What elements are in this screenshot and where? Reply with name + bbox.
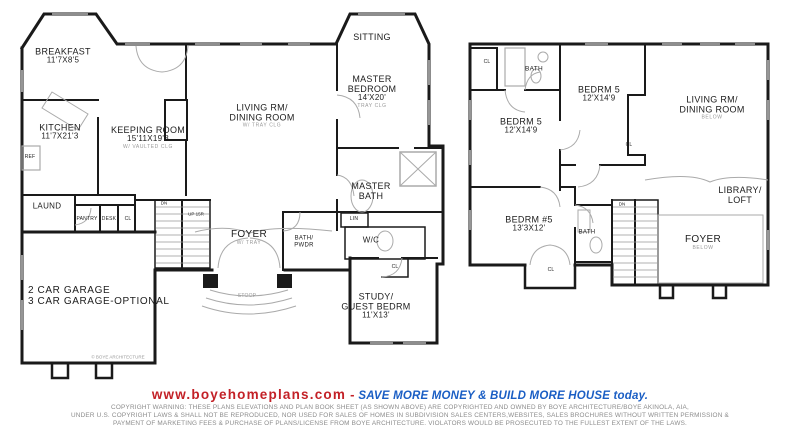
label-stairs-up: UP 15R [188,211,204,216]
room-name: BATH/ [294,235,314,242]
room-label-sitting: SITTING [353,32,391,42]
room-dims: 13'3X12' [505,225,552,234]
label-closet-hall: CL [125,217,132,223]
room-name: BATH [579,230,596,236]
copyright-line-1: COPYRIGHT WARNING: THESE PLANS ELEVATION… [0,404,800,411]
copyright-line-3: PAYMENT OF MARKETING FEES & PURCHASE OF … [0,420,800,427]
ceiling-note: W/ TRAY CLG [229,124,294,130]
stamp-text: © BOYE ARCHITECTURE [91,354,144,359]
room-dims: 15'11X19'8 [111,135,185,144]
room-name: LIBRARY/ [718,185,761,195]
room-label-bedrm5-lower: BEDRM #5 13'3X12' [505,214,552,233]
room-name: DINING ROOM [679,105,744,115]
room-dims: 12'X14'9 [500,127,542,136]
room-label-master-bedroom: MASTER BEDROOM 14'X20' TRAY CLG [348,74,397,110]
room-label-bedrm5-left: BEDRM 5 12'X14'9 [500,116,542,135]
ceiling-note: BELOW [685,246,721,252]
room-name: SITTING [353,32,391,42]
stair-label: DN [161,200,168,205]
room-name: 3 CAR GARAGE-OPTIONAL [28,296,170,307]
room-name: BATH [351,191,390,201]
room-dims: 11'7X21'3 [39,133,81,142]
room-label-foyer-below: FOYER BELOW [685,234,721,252]
room-label-master-bath: MASTER BATH [351,181,390,201]
stair-label: DN [619,201,626,206]
room-dims: 11'X13' [341,312,410,321]
room-label-kitchen: KITCHEN 11'7X21'3 [39,122,81,141]
room-label-keeping: KEEPING ROOM 15'11X19'8 W/ VAULTED CLG [111,125,185,151]
ceiling-note: W/ TRAY [231,241,267,247]
label-linen: LIN [350,217,358,223]
room-name: W/C [363,236,379,245]
label-closet-top: CL [484,60,491,66]
room-label-bedrm5-right: BEDRM 5 12'X14'9 [578,84,620,103]
label-desk: DESK [102,217,116,223]
room-label-breakfast: BREAKFAST 11'7X8'5 [35,46,91,65]
room-name: PWDR [294,242,314,249]
copyright-stamp: © BOYE ARCHITECTURE [91,354,144,359]
room-label-laundry: LAUND [33,203,62,212]
closet-label: CL [626,142,633,148]
room-label-living: LIVING RM/ DINING ROOM W/ TRAY CLG [229,103,294,130]
ceiling-note: W/ VAULTED CLG [111,145,185,151]
room-name: MASTER [348,74,397,84]
footer-promo-line: www.boyehomeplans.com-SAVE MORE MONEY & … [0,386,800,404]
room-name: DINING ROOM [229,113,294,123]
closet-label: CL [548,267,555,273]
room-label-bath-pwdr: BATH/ PWDR [294,235,314,248]
room-name: FOYER [685,234,721,245]
closet-label: CL [392,264,399,270]
closet-label: CL [125,216,132,222]
room-label-wc: W/C [363,237,379,246]
closet-label: LIN [350,216,358,222]
label-stairs-dn: DN [161,200,168,205]
closet-label: CL [484,59,491,65]
fixture-label: REF [25,154,36,160]
floor-plan-drawing [0,0,800,434]
floor-plan-sheet: BREAKFAST 11'7X8'5 KITCHEN 11'7X21'3 REF… [0,0,800,434]
room-label-bath-lower: BATH [579,230,596,237]
room-name: LOFT [718,195,761,205]
label-ref: REF [25,155,36,161]
ceiling-note: BELOW [679,116,744,122]
room-name: STUDY/ [341,291,410,301]
tagline-text: SAVE MORE MONEY & BUILD MORE HOUSE today… [358,390,648,402]
area-label: STOOP [238,293,256,299]
room-dims: 14'X20' [348,94,397,103]
room-name: LIVING RM/ [679,95,744,105]
plan2-walls [470,44,768,298]
copyright-line-2: UNDER U.S. COPYRIGHT LAWS & SHALL NOT BE… [0,412,800,419]
label-closet-mid: CL [626,143,633,149]
room-label-bath-upper: BATH [525,65,543,72]
ceiling-note: TRAY CLG [348,104,397,110]
room-label-garage: 2 CAR GARAGE 3 CAR GARAGE-OPTIONAL [28,285,170,307]
closet-label: DESK [102,216,116,222]
room-label-study: STUDY/ GUEST BEDRM 11'X13' [341,291,410,320]
room-name: FOYER [231,229,267,240]
label-stairs-dn-2: DN [619,201,626,206]
room-name: LAUND [33,202,62,211]
label-closet-bottom: CL [548,268,555,274]
stair-label: UP 15R [188,211,204,216]
closet-label: PANTRY [76,216,97,222]
room-label-library-loft: LIBRARY/ LOFT [718,185,761,205]
room-label-living-below: LIVING RM/ DINING ROOM BELOW [679,95,744,122]
room-dims: 12'X14'9 [578,95,620,104]
room-name: LIVING RM/ [229,103,294,113]
separator-dash: - [350,387,354,402]
room-dims: 11'7X8'5 [35,57,91,66]
room-label-foyer: FOYER W/ TRAY [231,229,267,247]
room-name: MASTER [351,181,390,191]
label-closet-study: CL [392,265,399,271]
room-name: BATH [525,65,543,72]
room-name: 2 CAR GARAGE [28,285,170,296]
website-link[interactable]: www.boyehomeplans.com [152,387,346,402]
label-stoop: STOOP [238,294,256,300]
label-pantry: PANTRY [76,217,97,223]
